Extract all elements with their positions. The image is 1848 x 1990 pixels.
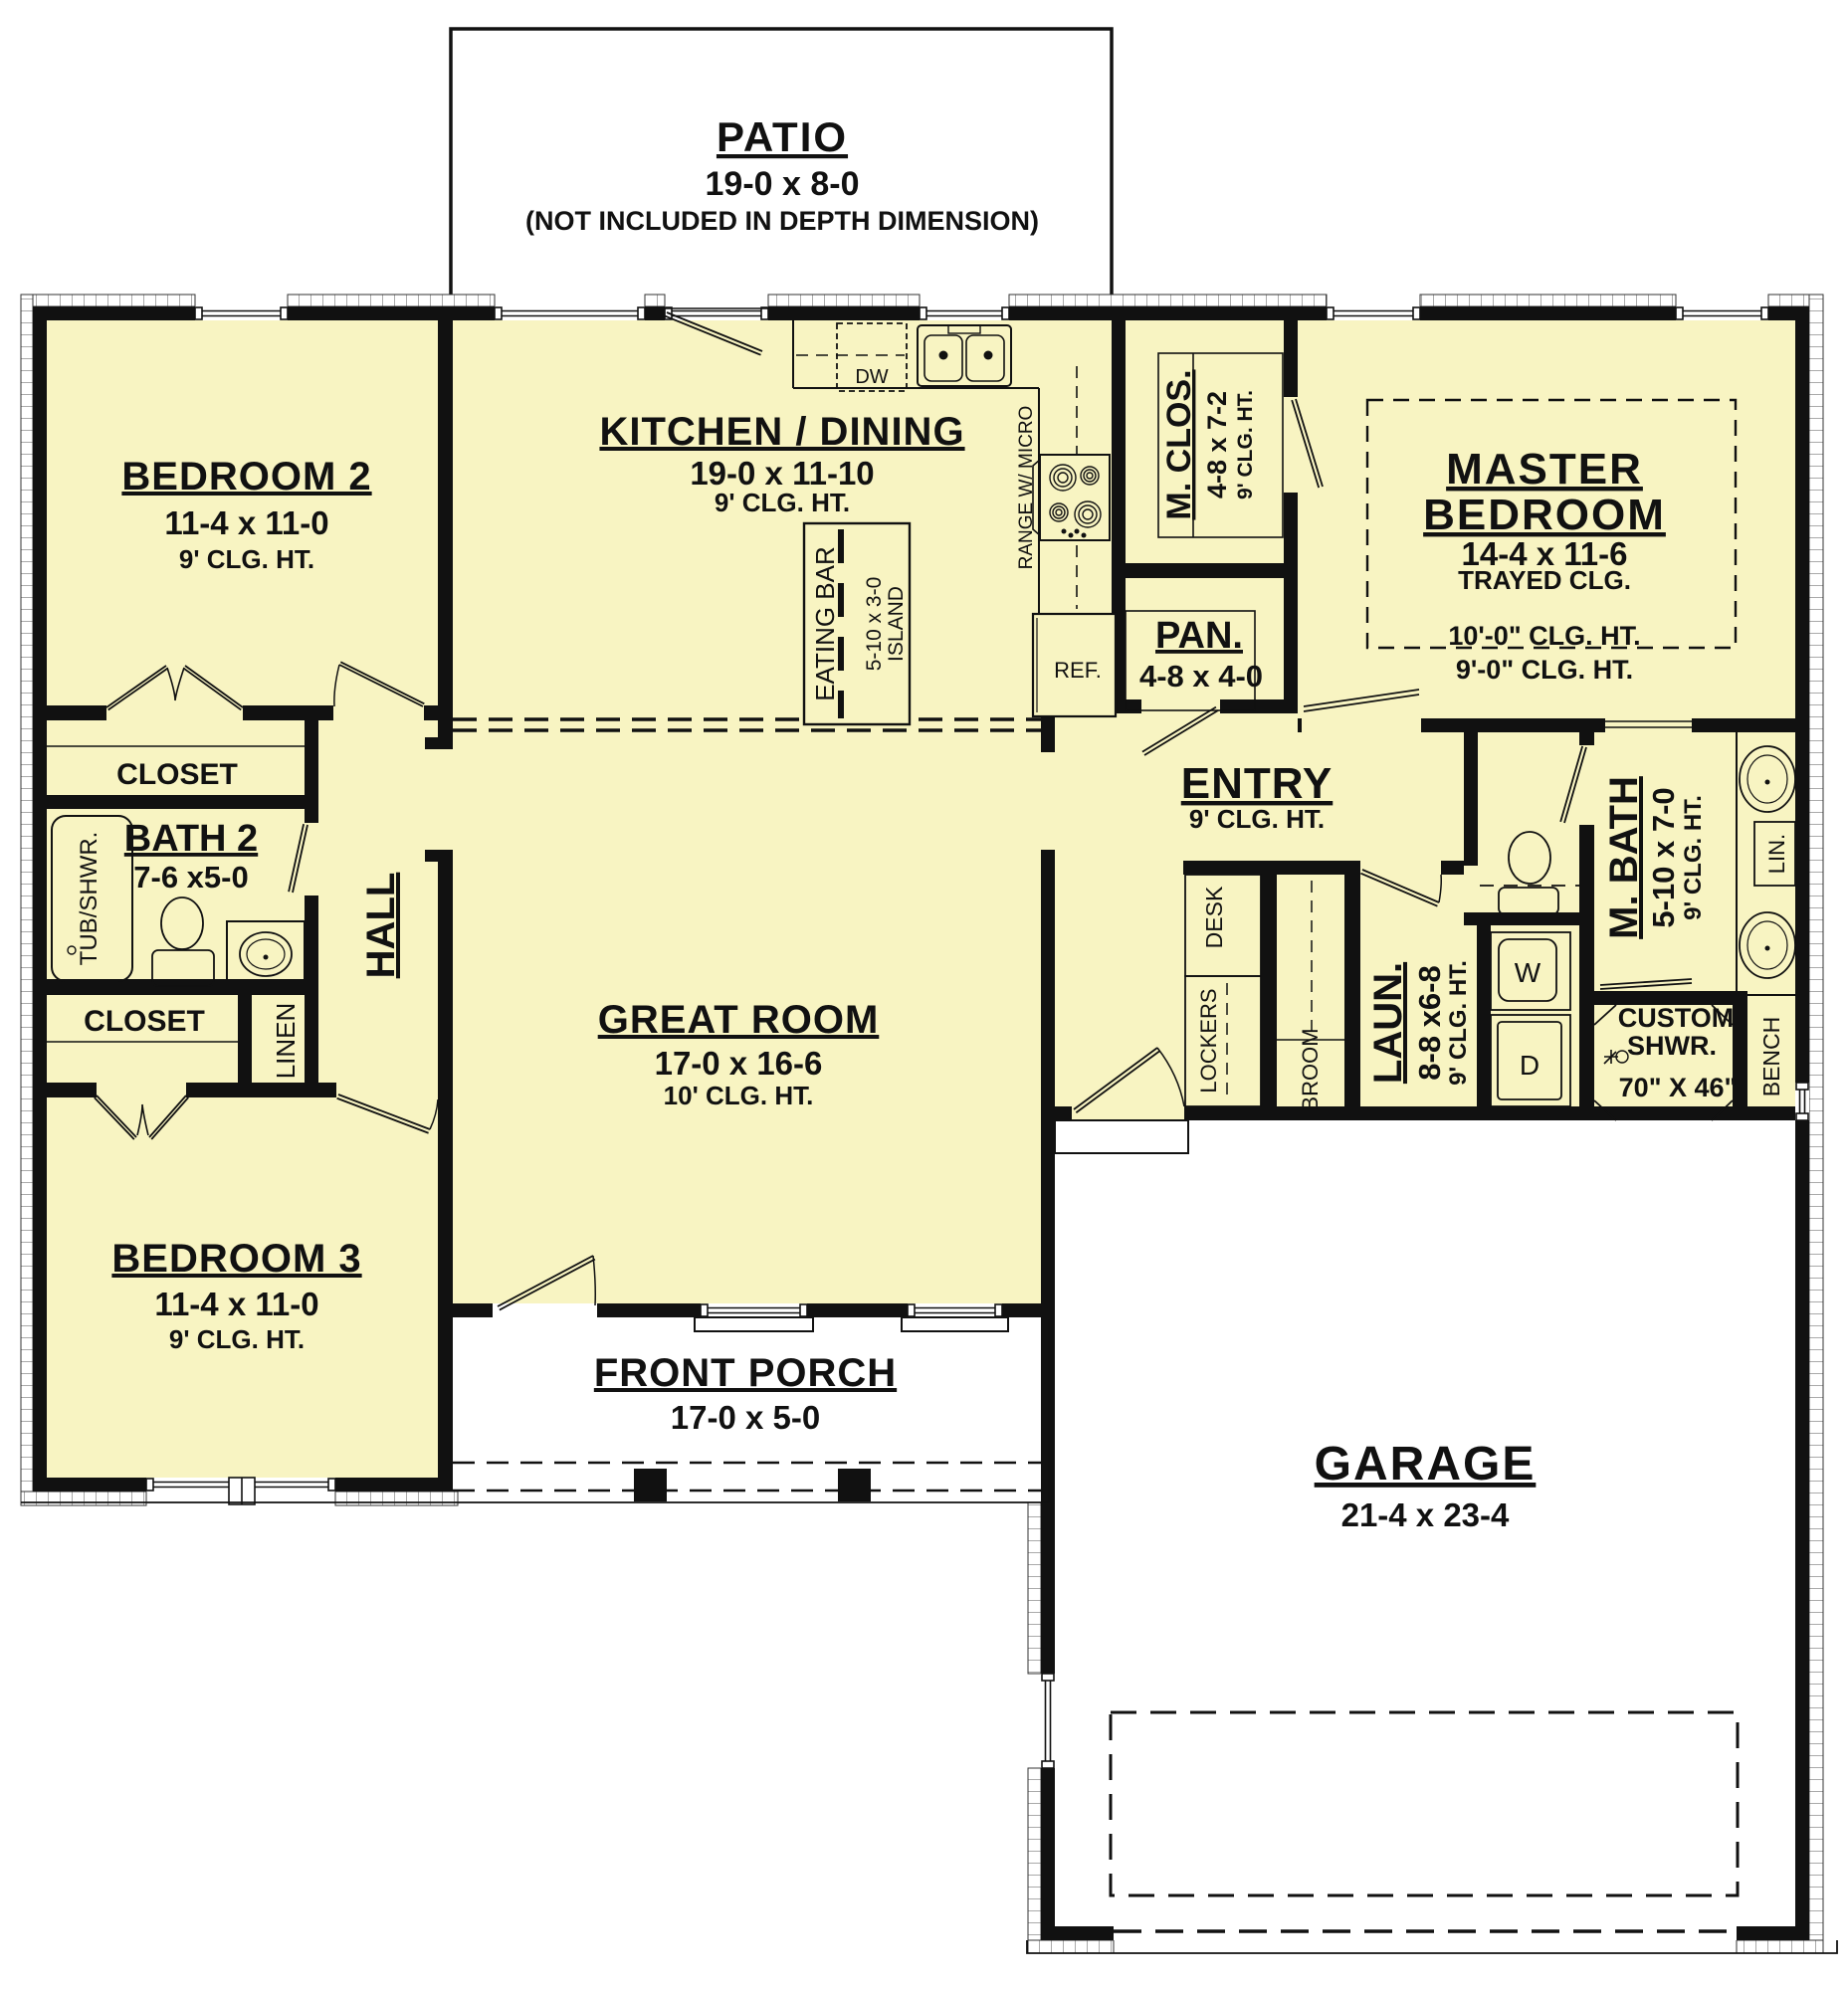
svg-text:CLOSET: CLOSET bbox=[116, 758, 238, 791]
svg-text:RANGE W/ MICRO: RANGE W/ MICRO bbox=[1016, 406, 1037, 570]
svg-text:SHWR.: SHWR. bbox=[1627, 1031, 1717, 1061]
svg-text:5-10 x 3-0: 5-10 x 3-0 bbox=[863, 577, 886, 672]
svg-text:11-4 x 11-0: 11-4 x 11-0 bbox=[154, 1286, 318, 1322]
svg-text:9' CLG. HT.: 9' CLG. HT. bbox=[169, 1324, 305, 1354]
svg-text:PATIO: PATIO bbox=[717, 113, 848, 160]
svg-text:DESK: DESK bbox=[1201, 886, 1227, 948]
svg-text:ENTRY: ENTRY bbox=[1181, 759, 1334, 808]
svg-text:9' CLG. HT.: 9' CLG. HT. bbox=[179, 544, 314, 574]
svg-text:LAUN.: LAUN. bbox=[1366, 962, 1410, 1084]
svg-text:9' CLG. HT.: 9' CLG. HT. bbox=[1680, 795, 1707, 920]
svg-text:19-0 x 8-0: 19-0 x 8-0 bbox=[706, 165, 860, 203]
svg-text:TUB/SHWR.: TUB/SHWR. bbox=[76, 832, 103, 966]
svg-text:M. CLOS.: M. CLOS. bbox=[1160, 369, 1198, 519]
svg-text:9' CLG. HT.: 9' CLG. HT. bbox=[1234, 390, 1257, 499]
svg-text:TRAYED CLG.: TRAYED CLG. bbox=[1458, 565, 1631, 595]
svg-text:LOCKERS: LOCKERS bbox=[1196, 988, 1221, 1093]
svg-text:4-8 x 7-2: 4-8 x 7-2 bbox=[1202, 391, 1232, 498]
svg-text:4-8 x 4-0: 4-8 x 4-0 bbox=[1139, 659, 1263, 694]
svg-text:BEDROOM 3: BEDROOM 3 bbox=[111, 1237, 361, 1281]
svg-text:BEDROOM: BEDROOM bbox=[1423, 491, 1666, 539]
svg-text:M. BATH: M. BATH bbox=[1602, 776, 1646, 939]
svg-text:11-4 x 11-0: 11-4 x 11-0 bbox=[164, 504, 328, 541]
svg-text:10'-0" CLG. HT.: 10'-0" CLG. HT. bbox=[1448, 621, 1640, 651]
svg-text:BATH 2: BATH 2 bbox=[124, 818, 258, 860]
svg-text:GARAGE: GARAGE bbox=[1315, 1438, 1537, 1491]
svg-text:CLOSET: CLOSET bbox=[84, 1005, 205, 1038]
svg-text:LIN.: LIN. bbox=[1764, 834, 1789, 874]
svg-text:W: W bbox=[1515, 957, 1541, 988]
svg-text:7-6 x5-0: 7-6 x5-0 bbox=[133, 860, 248, 895]
svg-text:D: D bbox=[1520, 1050, 1540, 1081]
svg-text:19-0 x 11-10: 19-0 x 11-10 bbox=[690, 455, 874, 492]
svg-text:LINEN: LINEN bbox=[271, 1003, 301, 1080]
svg-text:CUSTOM: CUSTOM bbox=[1618, 1003, 1735, 1033]
svg-text:BENCH: BENCH bbox=[1758, 1017, 1784, 1097]
svg-text:MASTER: MASTER bbox=[1446, 445, 1643, 494]
svg-text:ISLAND: ISLAND bbox=[885, 586, 908, 662]
svg-text:(NOT INCLUDED IN DEPTH DIMENSI: (NOT INCLUDED IN DEPTH DIMENSION) bbox=[525, 206, 1039, 236]
svg-text:EATING BAR: EATING BAR bbox=[810, 546, 840, 701]
svg-text:9'-0" CLG. HT.: 9'-0" CLG. HT. bbox=[1456, 655, 1633, 685]
svg-text:DW: DW bbox=[855, 366, 888, 388]
svg-text:KITCHEN / DINING: KITCHEN / DINING bbox=[599, 410, 964, 454]
svg-text:5-10 x 7-0: 5-10 x 7-0 bbox=[1646, 787, 1681, 927]
svg-text:17-0 x 16-6: 17-0 x 16-6 bbox=[655, 1045, 823, 1082]
svg-text:9' CLG. HT.: 9' CLG. HT. bbox=[715, 488, 850, 517]
svg-text:8-8 x6-8: 8-8 x6-8 bbox=[1412, 965, 1447, 1080]
svg-text:HALL: HALL bbox=[359, 873, 403, 979]
svg-text:GREAT ROOM: GREAT ROOM bbox=[598, 998, 880, 1042]
svg-text:REF.: REF. bbox=[1054, 658, 1102, 683]
svg-text:BEDROOM 2: BEDROOM 2 bbox=[121, 455, 371, 498]
svg-text:9' CLG. HT.: 9' CLG. HT. bbox=[1189, 804, 1325, 834]
svg-text:10' CLG. HT.: 10' CLG. HT. bbox=[664, 1081, 814, 1110]
svg-text:FRONT PORCH: FRONT PORCH bbox=[594, 1351, 897, 1395]
svg-text:21-4 x 23-4: 21-4 x 23-4 bbox=[1341, 1496, 1510, 1533]
svg-text:BROOM: BROOM bbox=[1298, 1028, 1323, 1110]
svg-text:PAN.: PAN. bbox=[1155, 615, 1243, 657]
svg-text:70" X 46": 70" X 46" bbox=[1619, 1073, 1738, 1102]
svg-text:9' CLG. HT.: 9' CLG. HT. bbox=[1445, 960, 1472, 1086]
svg-text:17-0 x 5-0: 17-0 x 5-0 bbox=[671, 1399, 820, 1436]
